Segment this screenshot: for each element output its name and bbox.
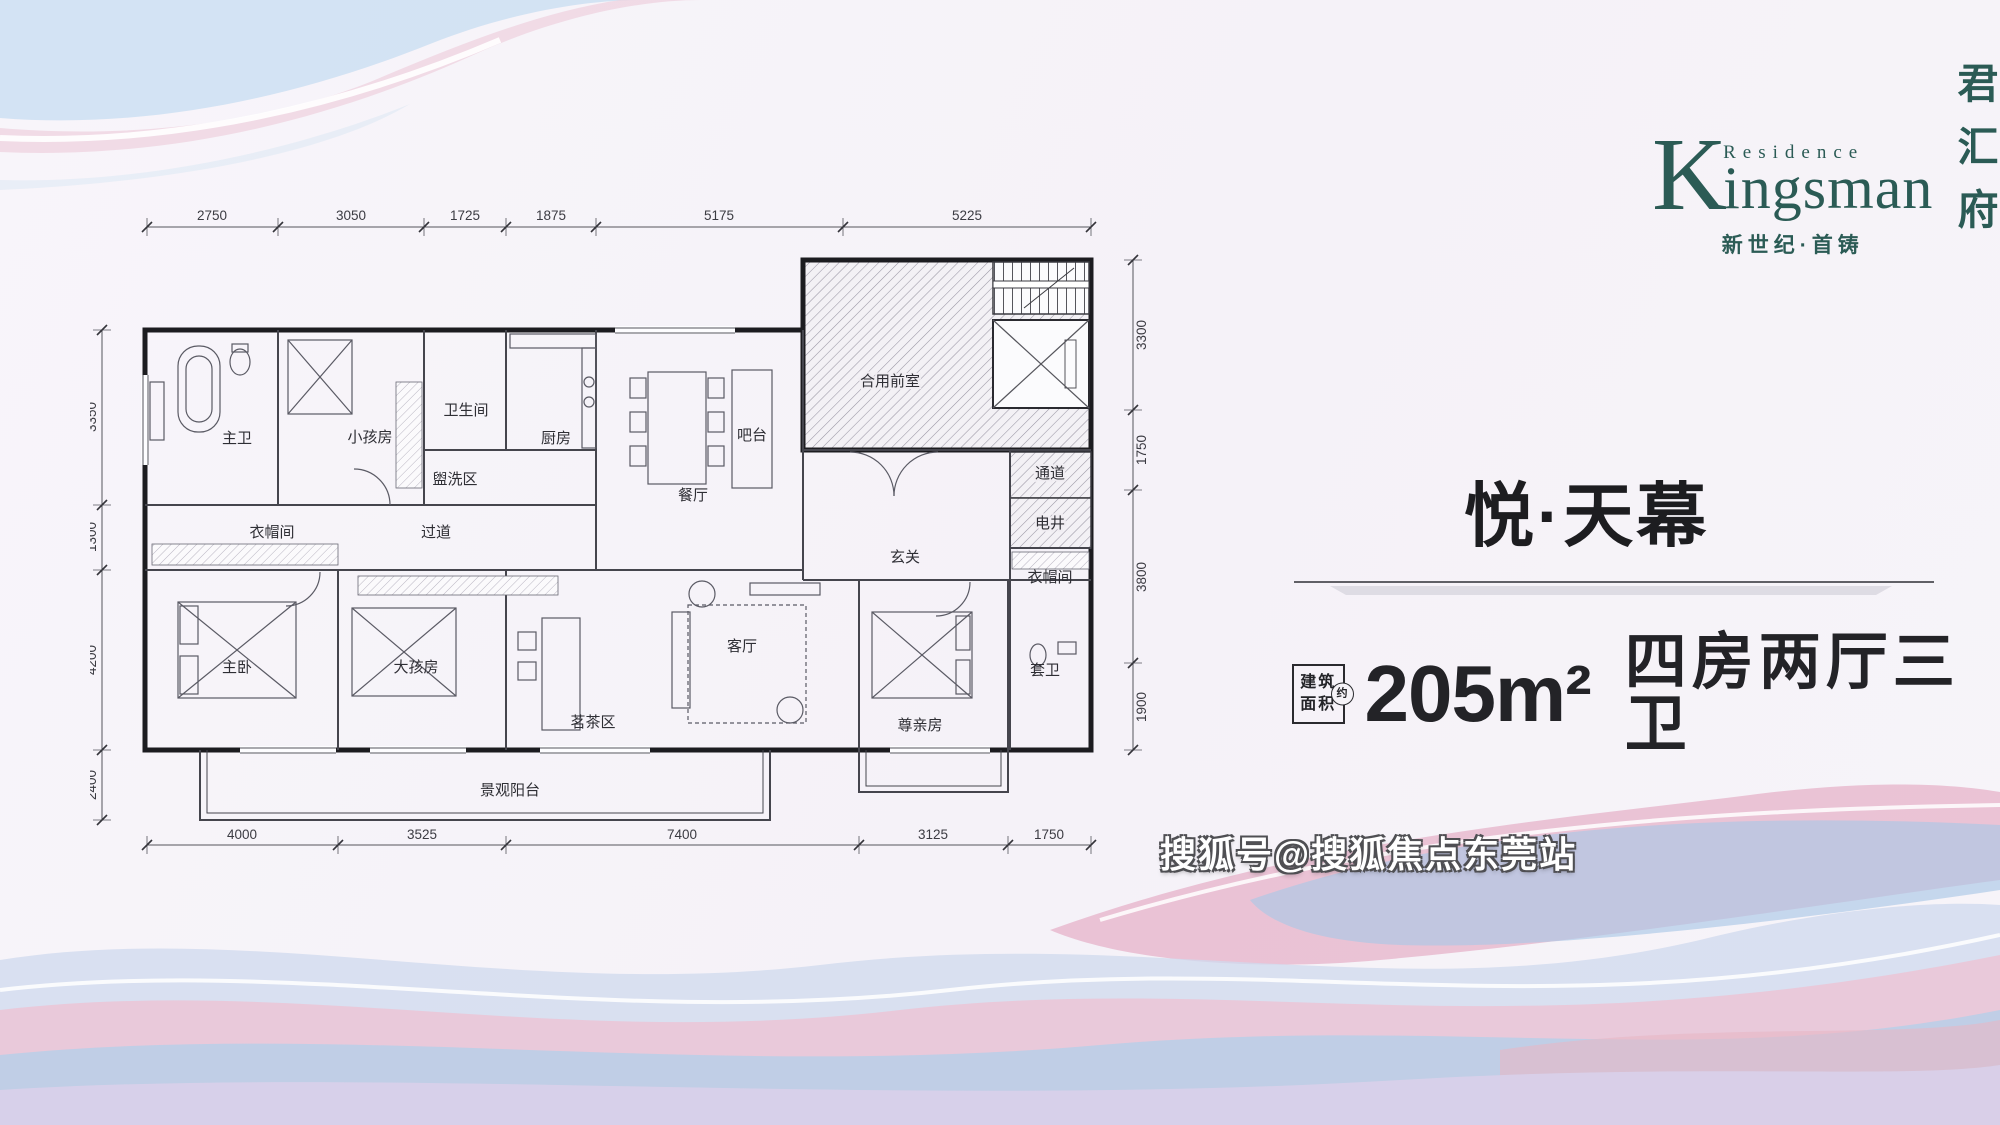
room-label-ensuite-bath: 套卫 — [1030, 662, 1060, 679]
room-label-kitchen: 厨房 — [541, 430, 571, 447]
room-label-utility-shaft: 电井 — [1035, 515, 1065, 532]
dim-bottom-1: 3525 — [407, 827, 437, 842]
dim-bottom-2: 7400 — [667, 827, 697, 842]
brand-vertical-name: 君 汇 府 — [1957, 64, 1998, 259]
dim-right-2: 3800 — [1134, 562, 1149, 592]
unit-spec-row: 建筑 面积 约 205m² 四房两厅三卫 — [1292, 632, 2000, 756]
room-label-bathroom: 卫生间 — [443, 402, 488, 419]
dim-bottom-4: 1750 — [1034, 827, 1064, 842]
room-label-foyer: 玄关 — [890, 549, 920, 566]
dim-left-3: 2400 — [90, 770, 99, 800]
room-label-shared-front-room: 合用前室 — [860, 373, 920, 390]
watermark: 搜狐号@搜狐焦点东莞站 — [1160, 826, 1577, 878]
elevator — [993, 320, 1089, 408]
dim-bottom-0: 4000 — [227, 827, 257, 842]
dim-left-2: 4200 — [90, 645, 99, 675]
rooms-spec: 四房两厅三卫 — [1625, 632, 2000, 756]
room-label-cloakroom-right: 衣帽间 — [1027, 569, 1072, 586]
room-label-corridor: 过道 — [421, 524, 451, 541]
dim-right-0: 3300 — [1134, 320, 1149, 350]
dim-left-1: 1300 — [90, 522, 99, 552]
dim-top-0: 2750 — [197, 208, 227, 223]
room-label-passage: 通道 — [1035, 465, 1065, 482]
brand-logo: K Residence ingsman 新世纪·首铸 君 汇 府 — [1652, 64, 1998, 259]
room-label-living-room: 客厅 — [727, 638, 757, 655]
dim-right-1: 1750 — [1134, 435, 1149, 465]
brand-vertical-char-1: 君 — [1957, 64, 1998, 105]
balcony-outline — [200, 750, 1008, 820]
dim-top-5: 5225 — [952, 208, 982, 223]
room-label-bar: 吧台 — [737, 427, 767, 444]
dim-bottom-3: 3125 — [918, 827, 948, 842]
dim-top-3: 1875 — [536, 208, 566, 223]
floorplan-drawing: 2750305017251875517552254000352574003125… — [90, 150, 1150, 870]
brand-vertical-char-3: 府 — [1957, 190, 1998, 231]
brand-vertical-char-2: 汇 — [1957, 127, 1998, 168]
dim-left-0: 3350 — [90, 402, 99, 432]
poster-page: K Residence ingsman 新世纪·首铸 君 汇 府 悦·天幕 建筑… — [0, 0, 2000, 1125]
room-label-master-bath: 主卫 — [222, 430, 252, 447]
room-label-elder-kids-room: 大孩房 — [393, 659, 438, 676]
brand-name-rest: ingsman — [1723, 164, 1933, 213]
staircase — [993, 262, 1089, 314]
area-approx-badge: 约 — [1331, 683, 1354, 706]
dim-right-3: 1900 — [1134, 692, 1149, 722]
unit-title: 悦·天幕 — [1464, 460, 1709, 561]
room-label-kids-room: 小孩房 — [347, 429, 392, 446]
dim-top-4: 5175 — [704, 208, 734, 223]
room-label-elder-room: 尊亲房 — [897, 717, 942, 734]
room-label-cloakroom-left: 衣帽间 — [249, 524, 294, 541]
room-label-dining-room: 餐厅 — [678, 487, 708, 504]
area-value: 205m² — [1365, 654, 1591, 734]
room-label-master-bedroom: 主卧 — [222, 659, 252, 676]
divider-line — [1290, 576, 1938, 602]
room-label-balcony: 景观阳台 — [480, 782, 540, 799]
room-label-tea-area: 茗茶区 — [570, 714, 615, 731]
dim-top-2: 1725 — [450, 208, 480, 223]
dim-top-1: 3050 — [336, 208, 366, 223]
brand-logo-english: K Residence ingsman 新世纪·首铸 — [1652, 138, 1933, 259]
area-label-box: 建筑 面积 约 — [1292, 664, 1345, 724]
brand-tagline: 新世纪·首铸 — [1722, 229, 1864, 259]
room-label-wash-area: 盥洗区 — [432, 471, 477, 488]
brand-initial: K — [1652, 138, 1727, 213]
